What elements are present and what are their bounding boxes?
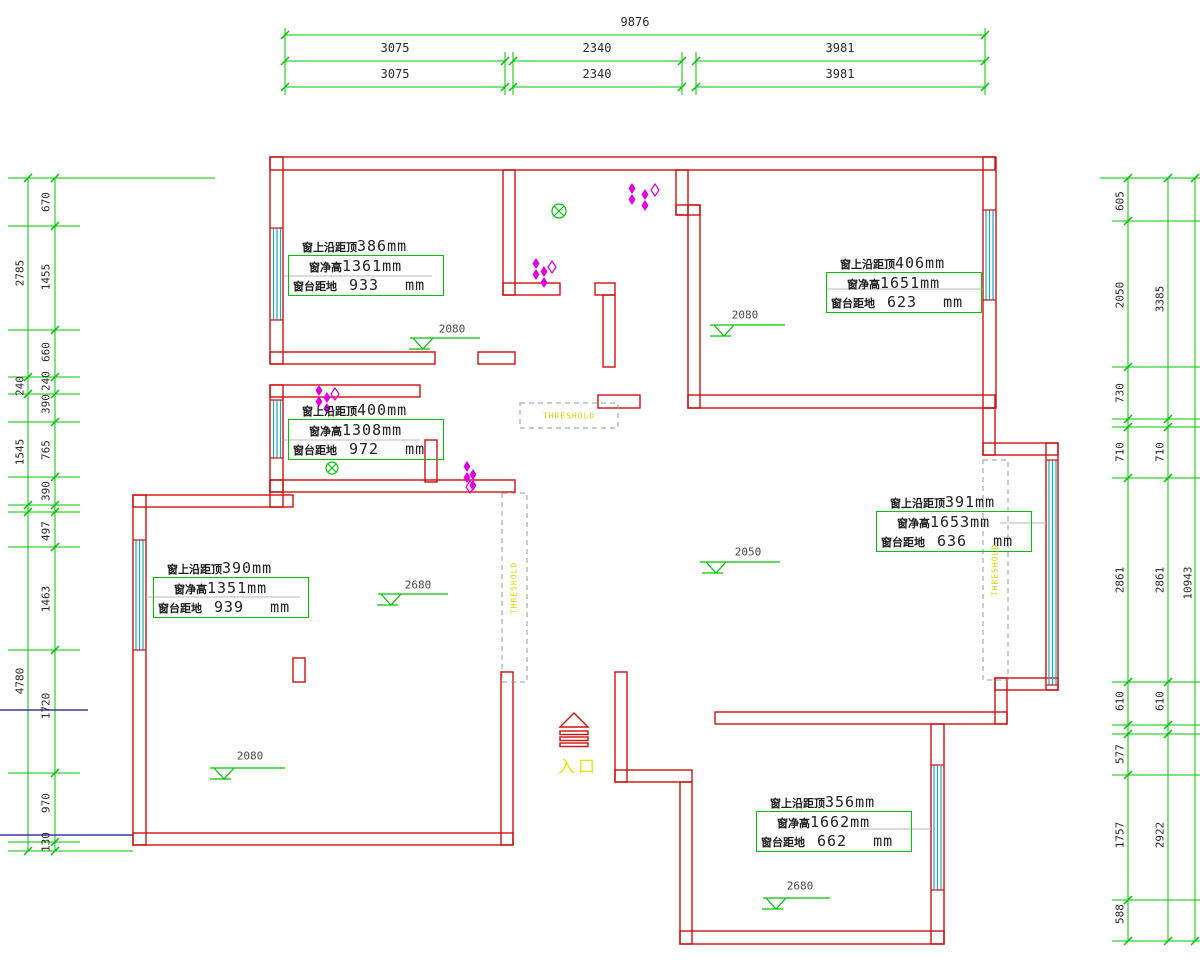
dim-right-inner-3: 710 [1114, 442, 1127, 462]
dim-top-seg3: 3981 [826, 41, 855, 55]
dim-top-seg2-b: 2340 [583, 67, 612, 81]
win5-height-value: 1653mm [930, 513, 990, 531]
dim-left-inner-11: 130 [40, 832, 53, 852]
dim-left-inner-8: 1463 [40, 586, 53, 613]
floorplan-drawing [0, 0, 1200, 960]
win4-height-label: 窗净高 [174, 583, 207, 596]
win6-height-value: 1662mm [810, 813, 870, 831]
win3-top-label: 窗上沿距顶 [302, 405, 357, 418]
dim-left-inner-3: 240 [40, 371, 53, 391]
win1-sill-label: 窗台距地 [293, 280, 337, 293]
dim-right-outer-total: 10943 [1182, 566, 1195, 599]
dim-top-seg2: 2340 [583, 41, 612, 55]
win2-height-label: 窗净高 [847, 278, 880, 291]
dim-right-inner-2: 730 [1114, 383, 1127, 403]
threshold-label-hall: THRESHOLD [543, 412, 595, 421]
dim-right-mid-2: 2861 [1154, 567, 1167, 594]
elevation-value-2: 2080 [732, 309, 759, 322]
window-symbol-left-lower [133, 540, 146, 650]
window-annotation-6: 窗上沿距顶356mm 窗净高1662mm 窗台距地662mm [756, 793, 912, 852]
dim-right-inner-8: 588 [1114, 904, 1127, 924]
dim-left-inner-7: 497 [40, 521, 53, 541]
dim-left-inner-6: 390 [40, 481, 53, 501]
dim-left-outer-0: 2785 [14, 260, 27, 287]
win5-top-label: 窗上沿距顶 [890, 497, 945, 510]
window-annotation-1: 窗上沿距顶386mm 窗净高1361mm 窗台距地933mm [288, 237, 444, 296]
win2-top-value: 406mm [895, 254, 945, 272]
elevation-value-1: 2080 [439, 323, 466, 336]
dim-top-total: 9876 [621, 15, 650, 29]
win6-top-label: 窗上沿距顶 [770, 797, 825, 810]
win3-sill-label: 窗台距地 [293, 444, 337, 457]
entry-label: 入口 [558, 753, 598, 778]
dim-left-inner-2: 660 [40, 342, 53, 362]
win6-sill-label: 窗台距地 [761, 836, 805, 849]
win5-box: 窗净高1653mm 窗台距地636mm [876, 511, 1032, 552]
dim-left-outer-1: 240 [14, 376, 27, 396]
dim-right-inner-0: 605 [1114, 191, 1127, 211]
win5-sill-value: 636 [937, 532, 967, 550]
win3-height-label: 窗净高 [309, 425, 342, 438]
win1-top-value: 386mm [357, 237, 407, 255]
dim-left-inner-10: 970 [40, 793, 53, 813]
win5-sill-label: 窗台距地 [881, 536, 925, 549]
win1-sill-value: 933 [349, 276, 379, 294]
win3-box: 窗净高1308mm 窗台距地972mm [288, 419, 444, 460]
dim-left-outer-3: 4780 [14, 668, 27, 695]
win1-top-label: 窗上沿距顶 [302, 241, 357, 254]
dim-left-inner-1: 1455 [40, 264, 53, 291]
win6-top-value: 356mm [825, 793, 875, 811]
win3-top-value: 400mm [357, 401, 407, 419]
win2-box: 窗净高1651mm 窗台距地623mm [826, 272, 982, 313]
dim-left-inner-4: 390 [40, 394, 53, 414]
dim-right-mid-4: 2922 [1154, 822, 1167, 849]
win2-sill-label: 窗台距地 [831, 297, 875, 310]
win3-height-value: 1308mm [342, 421, 402, 439]
dim-left-inner-0: 670 [40, 192, 53, 212]
dim-right-inner-7: 1757 [1114, 822, 1127, 849]
win6-box: 窗净高1662mm 窗台距地662mm [756, 811, 912, 852]
win4-sill-value: 939 [214, 598, 244, 616]
win2-top-label: 窗上沿距顶 [840, 258, 895, 271]
win5-height-label: 窗净高 [897, 517, 930, 530]
win2-height-value: 1651mm [880, 274, 940, 292]
window-symbol-left-mid [270, 400, 283, 458]
win2-sill-unit: mm [943, 293, 963, 311]
dim-right-inner-4: 2861 [1114, 567, 1127, 594]
top-dimension-lines [281, 28, 989, 95]
dim-top-seg1: 3075 [381, 41, 410, 55]
win6-height-label: 窗净高 [777, 817, 810, 830]
win3-sill-value: 972 [349, 440, 379, 458]
win4-top-value: 390mm [222, 559, 272, 577]
window-annotation-4: 窗上沿距顶390mm 窗净高1351mm 窗台距地939mm [153, 559, 309, 618]
win4-height-value: 1351mm [207, 579, 267, 597]
win6-sill-unit: mm [873, 832, 893, 850]
win1-box: 窗净高1361mm 窗台距地933mm [288, 255, 444, 296]
dim-top-seg1-b: 3075 [381, 67, 410, 81]
win4-box: 窗净高1351mm 窗台距地939mm [153, 577, 309, 618]
dim-right-mid-3: 610 [1154, 691, 1167, 711]
win2-sill-value: 623 [887, 293, 917, 311]
floorplan-canvas: 9876 3075 2340 3981 3075 2340 3981 2785 … [0, 0, 1200, 960]
dim-right-inner-6: 577 [1114, 744, 1127, 764]
elevation-value-3: 2680 [405, 579, 432, 592]
elevation-value-4: 2050 [735, 546, 762, 559]
window-annotation-5: 窗上沿距顶391mm 窗净高1653mm 窗台距地636mm [876, 493, 1032, 552]
win4-sill-label: 窗台距地 [158, 602, 202, 615]
dim-top-seg3-b: 3981 [826, 67, 855, 81]
window-symbol-right-bay [1046, 460, 1058, 685]
dim-right-inner-5: 610 [1114, 691, 1127, 711]
window-symbol-bottom-right [931, 765, 944, 890]
win6-sill-value: 662 [817, 832, 847, 850]
dim-left-inner-5: 765 [40, 440, 53, 460]
dim-right-mid-1: 710 [1154, 442, 1167, 462]
win3-sill-unit: mm [405, 440, 425, 458]
window-annotation-3: 窗上沿距顶400mm 窗净高1308mm 窗台距地972mm [288, 401, 444, 460]
dim-right-inner-1: 2050 [1114, 282, 1127, 309]
win4-sill-unit: mm [270, 598, 290, 616]
elevation-value-6: 2680 [787, 880, 814, 893]
window-symbol-left-top [270, 228, 283, 320]
dim-right-mid-0: 3385 [1154, 286, 1167, 313]
win5-top-value: 391mm [945, 493, 995, 511]
win1-height-value: 1361mm [342, 257, 402, 275]
dim-left-outer-2: 1545 [14, 439, 27, 466]
leader-lines [146, 276, 1046, 829]
win1-sill-unit: mm [405, 276, 425, 294]
win4-top-label: 窗上沿距顶 [167, 563, 222, 576]
win1-height-label: 窗净高 [309, 261, 342, 274]
window-annotation-2: 窗上沿距顶406mm 窗净高1651mm 窗台距地623mm [826, 254, 982, 313]
dim-left-inner-9: 1720 [40, 693, 53, 720]
threshold-label-right: THRESHOLD [991, 544, 1000, 596]
entry-symbol [560, 713, 588, 747]
elevation-value-5: 2080 [237, 750, 264, 763]
threshold-label-left: THRESHOLD [510, 562, 519, 614]
window-symbol-right-top [983, 210, 996, 300]
